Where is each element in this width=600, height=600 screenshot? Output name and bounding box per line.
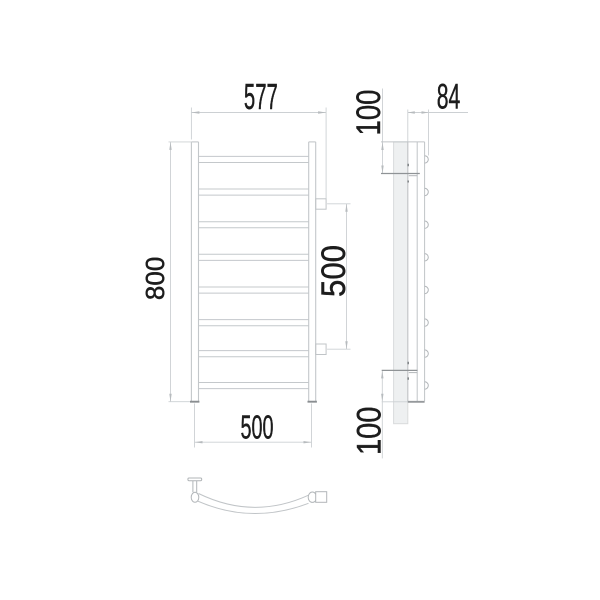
svg-text:100: 100 [350, 90, 388, 136]
svg-text:500: 500 [315, 245, 353, 297]
svg-text:800: 800 [140, 257, 170, 300]
svg-text:500: 500 [241, 409, 274, 446]
svg-text:100: 100 [351, 407, 389, 456]
svg-text:577: 577 [244, 76, 278, 117]
svg-text:84: 84 [437, 78, 461, 117]
